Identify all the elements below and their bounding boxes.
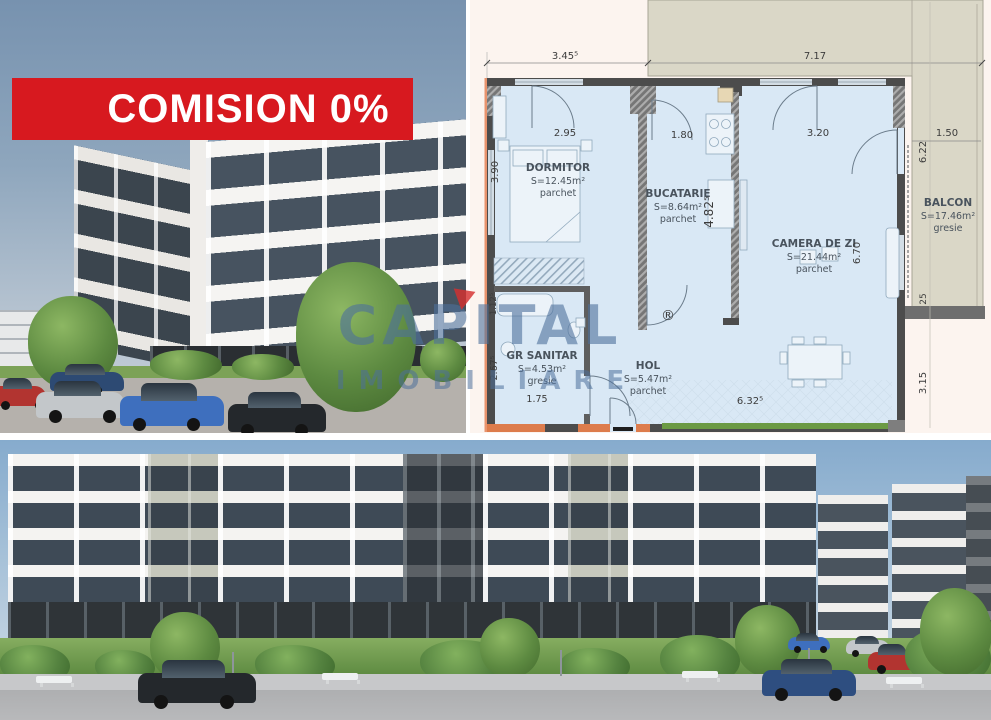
- photo-bottom: [0, 440, 991, 720]
- tree: [920, 588, 991, 676]
- room-name-bucatarie: BUCATARIE: [645, 188, 710, 200]
- photo-top-left: COMISION 0%: [0, 0, 466, 433]
- car: [36, 392, 124, 418]
- dim-camera-h: 6.70: [852, 242, 863, 264]
- floorplan-drawing: 3.45⁵ 7.17 DORMITOR S=12.45m² parchet BU…: [470, 0, 991, 433]
- dim-right-low: 3.15: [918, 372, 929, 394]
- room-name-hol: HOL: [636, 360, 661, 372]
- dim-sanitar-w: 1.75: [526, 394, 547, 405]
- room-name-camera-de-zi: CAMERA DE ZI: [772, 238, 856, 250]
- car: [138, 673, 256, 703]
- dim-hol-w: 6.32⁵: [737, 396, 763, 407]
- listing-collage: COMISION 0%: [0, 0, 991, 720]
- dim-bucatarie-w: 1.80: [671, 130, 693, 141]
- facade-dark-section: [403, 454, 483, 602]
- dim-camera-w: 3.20: [807, 128, 829, 139]
- car: [762, 670, 856, 696]
- car: [120, 396, 224, 426]
- lamp-post: [560, 650, 562, 676]
- room-area-gr-sanitar: S=4.53m²: [518, 364, 566, 375]
- facade-white-section: [8, 454, 148, 602]
- room-area-hol: S=5.47m²: [624, 374, 672, 385]
- registered-symbol: ®: [661, 308, 675, 324]
- room-name-balcon: BALCON: [924, 197, 972, 209]
- room-name-dormitor: DORMITOR: [526, 162, 590, 174]
- bench: [322, 673, 358, 680]
- dim-top-left: 3.45⁵: [552, 51, 578, 62]
- floorplan-panel: 3.45⁵ 7.17 DORMITOR S=12.45m² parchet BU…: [470, 0, 991, 433]
- room-floor-hol: parchet: [630, 386, 667, 397]
- car: [228, 404, 326, 432]
- facade-white-section: [628, 454, 816, 602]
- bush: [150, 350, 222, 380]
- dim-balcon-w: 1.50: [936, 128, 958, 139]
- dim-dormitor-h: 3.90: [490, 161, 501, 183]
- commission-banner-label: COMISION 0%: [107, 87, 389, 132]
- main-building: [8, 454, 816, 644]
- room-floor-balcon: gresie: [933, 223, 962, 234]
- facade-gray-section: [568, 454, 628, 602]
- dim-sanitar-h: 2.67⁵: [489, 355, 500, 380]
- bench: [682, 671, 718, 678]
- dim-top-right: 7.17: [804, 51, 826, 62]
- room-area-dormitor: S=12.45m²: [531, 176, 585, 187]
- room-area-camera-de-zi: S=21.44m²: [787, 252, 841, 263]
- tree: [480, 618, 540, 678]
- dim-sanitar-small: 1.12⁵: [489, 293, 499, 315]
- bench: [36, 676, 72, 683]
- room-floor-camera-de-zi: parchet: [796, 264, 833, 275]
- room-floor-gr-sanitar: gresie: [527, 376, 556, 387]
- bush: [232, 354, 294, 380]
- dim-right-small: 25: [919, 293, 929, 304]
- background-building: [818, 495, 888, 644]
- room-floor-bucatarie: parchet: [660, 214, 697, 225]
- facade-white-section: [483, 454, 568, 602]
- bench: [886, 677, 922, 684]
- bush: [420, 338, 466, 382]
- facade-white-section: [218, 454, 403, 602]
- dim-balcon-h: 6.22: [918, 141, 929, 163]
- dim-dormitor-w: 2.95: [554, 128, 576, 139]
- room-floor-dormitor: parchet: [540, 188, 577, 199]
- room-area-bucatarie: S=8.64m²: [654, 202, 702, 213]
- room-area-balcon: S=17.46m²: [921, 211, 975, 222]
- facade-gray-section: [148, 454, 218, 602]
- dim-shaft-h: 4.82⁵: [702, 196, 716, 228]
- commission-banner: COMISION 0%: [12, 78, 413, 140]
- room-name-gr-sanitar: GR SANITAR: [506, 350, 577, 362]
- tree: [296, 262, 416, 412]
